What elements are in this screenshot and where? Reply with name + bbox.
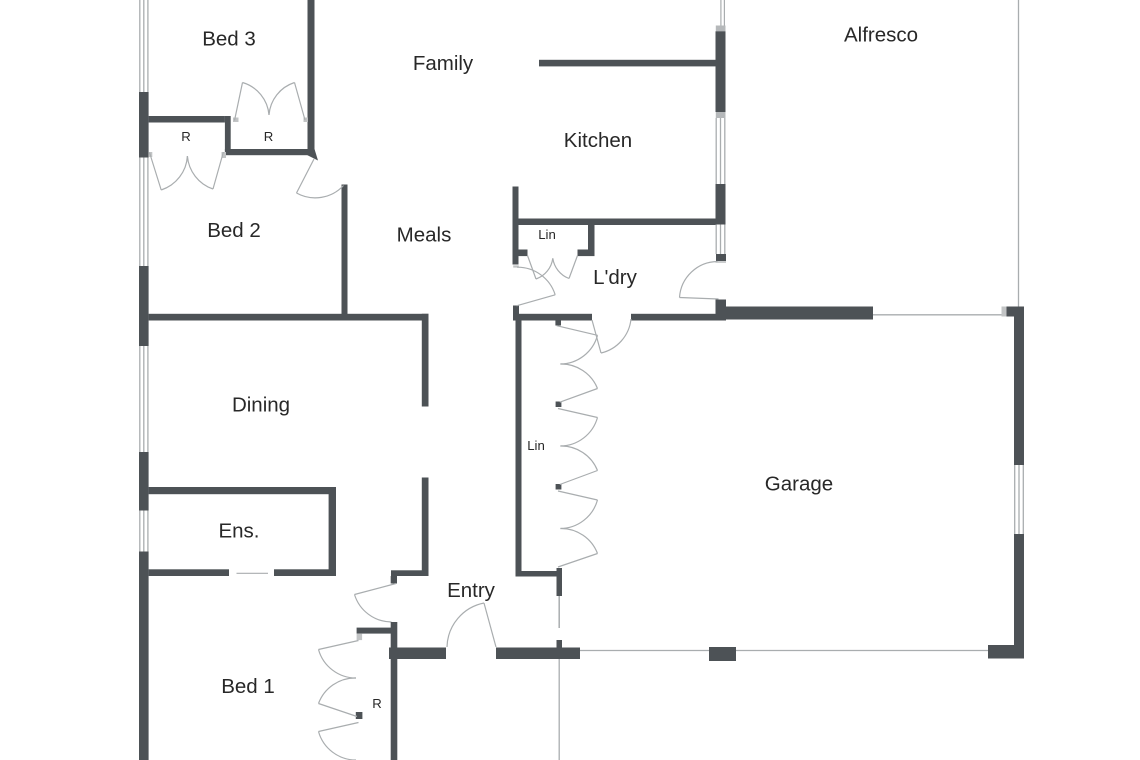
svg-text:Kitchen: Kitchen [564, 129, 632, 152]
svg-text:Meals: Meals [397, 224, 452, 247]
svg-text:R: R [181, 129, 191, 144]
svg-text:Lin: Lin [538, 227, 556, 242]
svg-text:R: R [264, 129, 274, 144]
svg-text:Garage: Garage [765, 473, 833, 496]
svg-text:Bed 3: Bed 3 [202, 28, 256, 51]
svg-text:Bed 1: Bed 1 [221, 675, 275, 698]
svg-text:Ens.: Ens. [218, 520, 259, 543]
svg-text:Lin: Lin [527, 438, 545, 453]
svg-text:Family: Family [413, 52, 474, 75]
svg-text:Alfresco: Alfresco [844, 24, 918, 47]
svg-text:Entry: Entry [447, 579, 496, 602]
svg-text:Dining: Dining [232, 394, 290, 417]
svg-text:L'dry: L'dry [593, 266, 638, 289]
svg-text:Bed 2: Bed 2 [207, 219, 261, 242]
svg-text:R: R [372, 696, 382, 711]
